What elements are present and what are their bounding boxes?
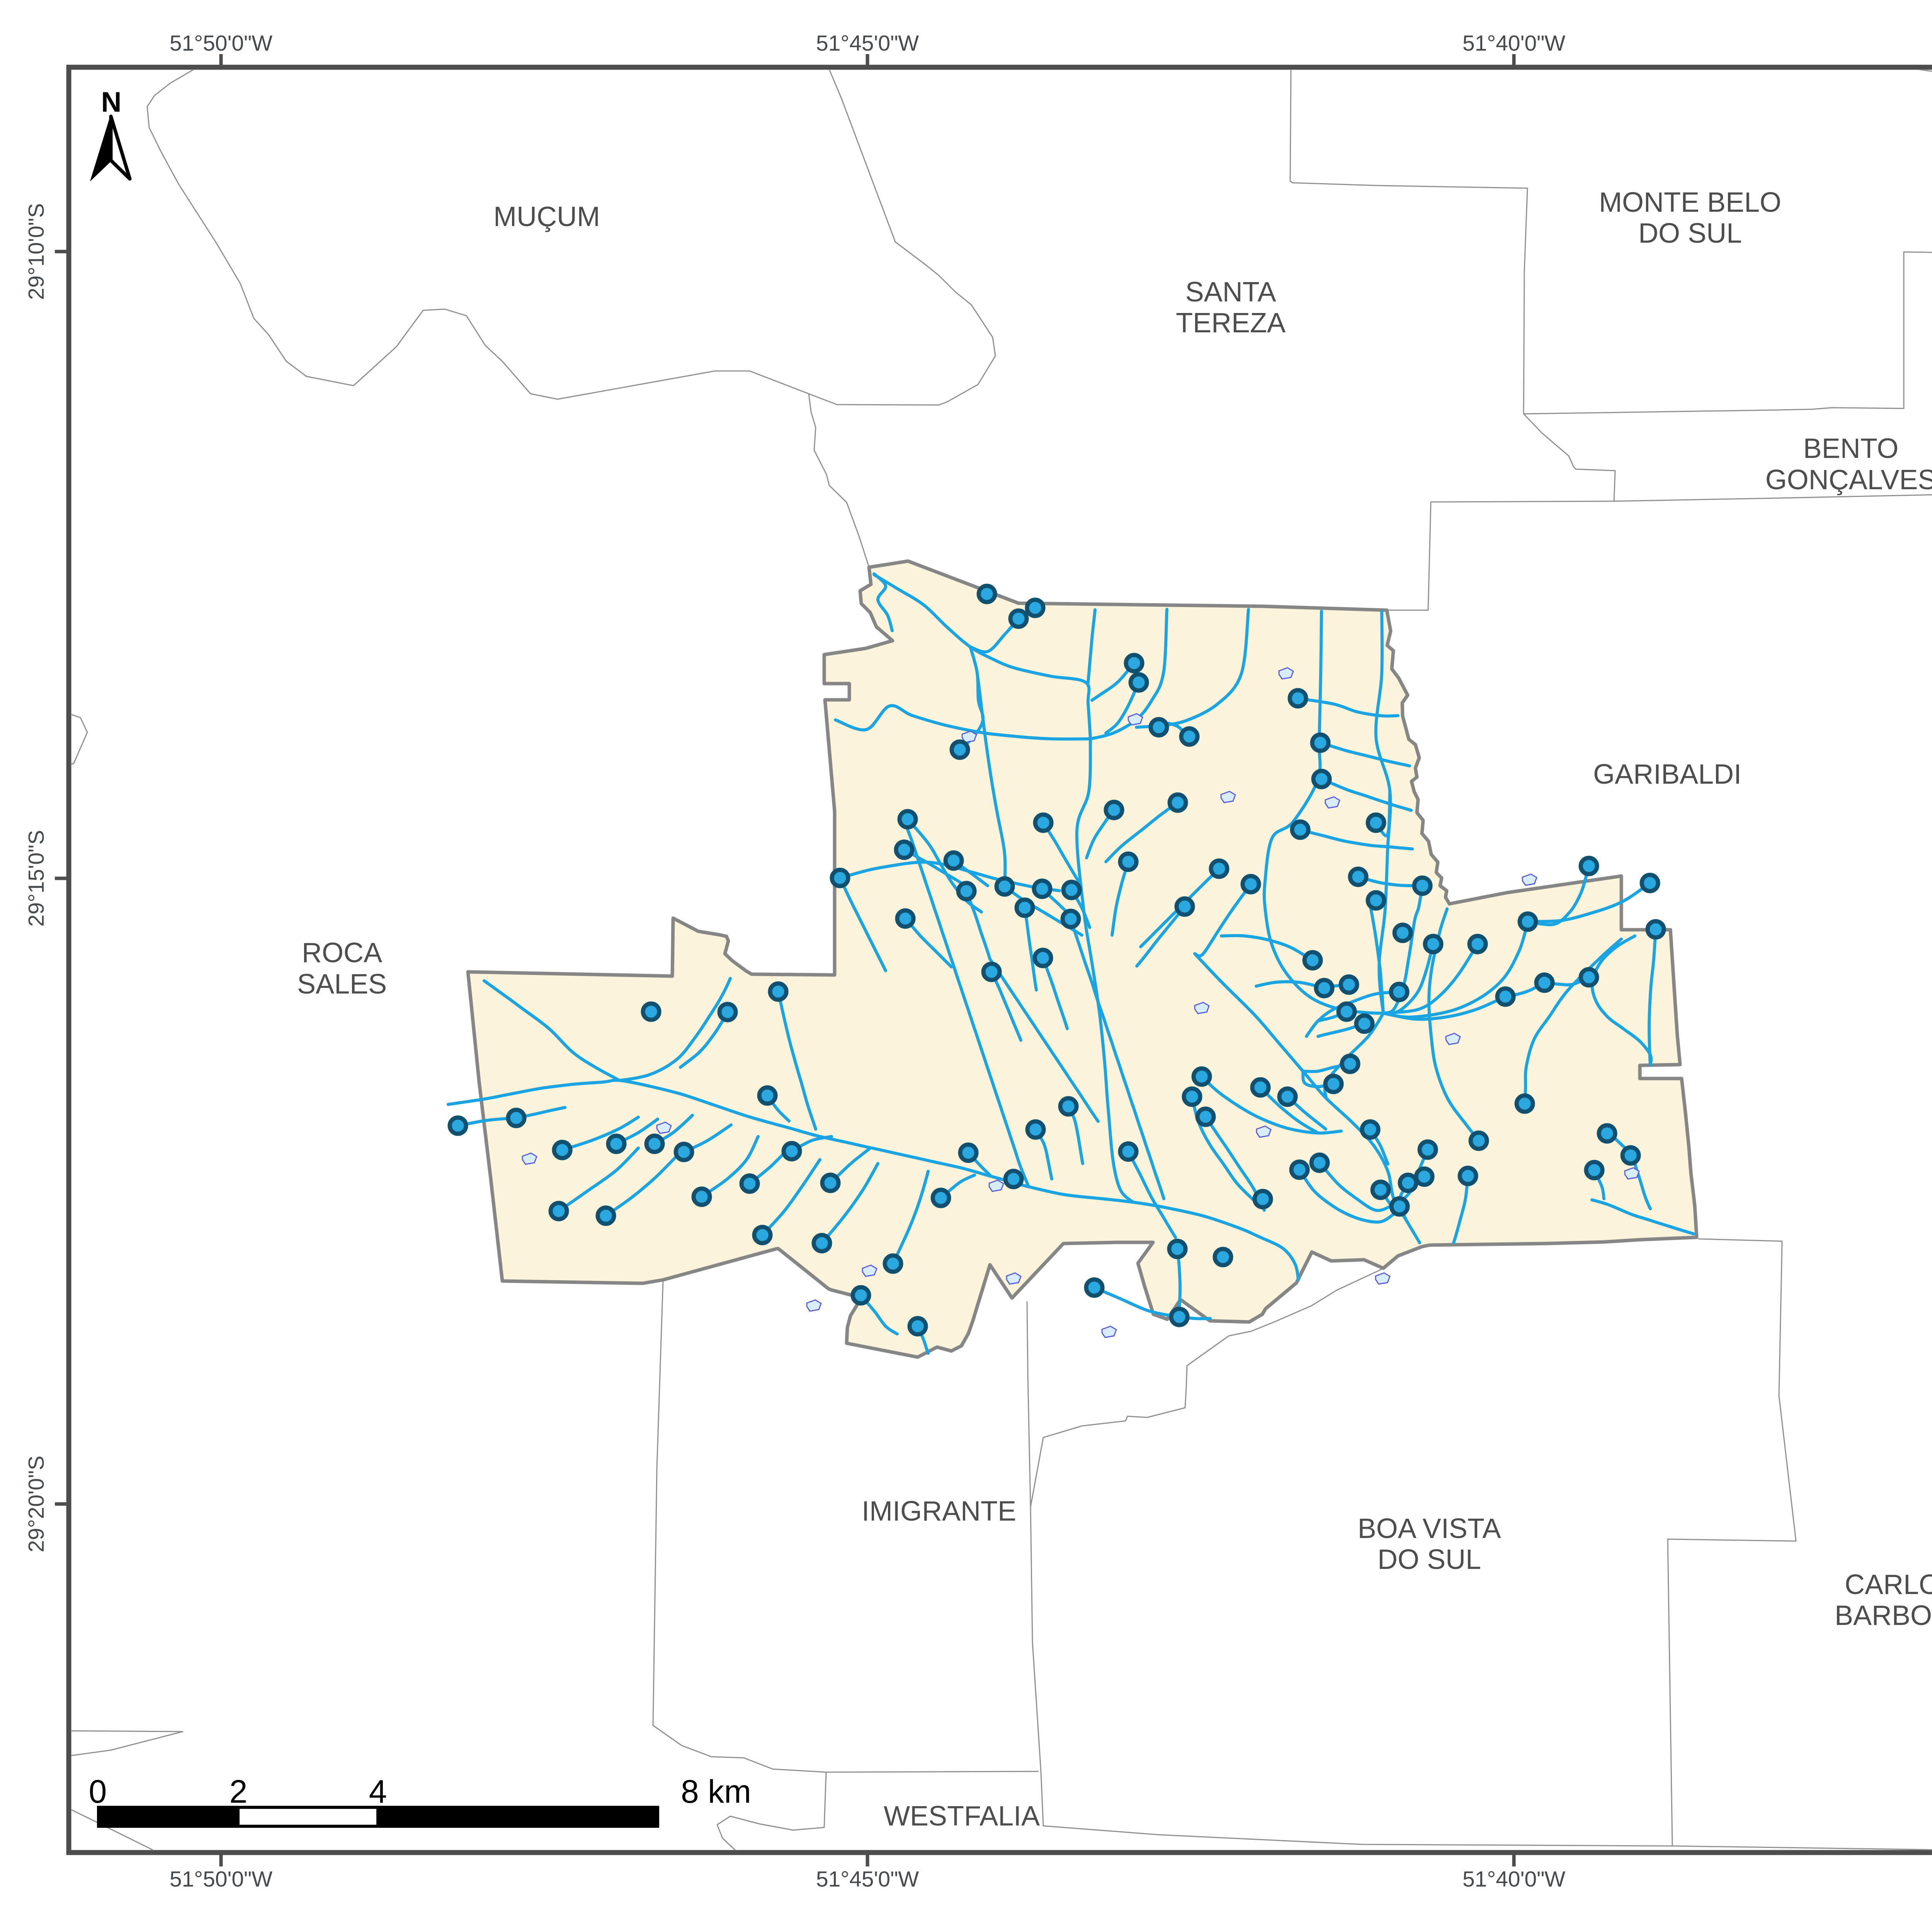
svg-text:BARBOSA: BARBOSA xyxy=(1835,1600,1932,1631)
svg-text:29°15'0"S: 29°15'0"S xyxy=(24,830,49,927)
svg-text:N: N xyxy=(101,87,122,118)
svg-text:MONTE BELO: MONTE BELO xyxy=(1599,187,1781,218)
svg-text:MUÇUM: MUÇUM xyxy=(493,201,600,232)
svg-text:2: 2 xyxy=(230,1773,248,1810)
svg-text:DO SUL: DO SUL xyxy=(1638,218,1742,249)
svg-text:BENTO: BENTO xyxy=(1803,433,1899,464)
svg-text:TEREZA: TEREZA xyxy=(1176,308,1286,339)
svg-text:51°40'0"W: 51°40'0"W xyxy=(1463,31,1565,56)
svg-text:CARLOS: CARLOS xyxy=(1845,1569,1932,1600)
svg-text:29°20'0"S: 29°20'0"S xyxy=(24,1456,49,1552)
svg-text:0: 0 xyxy=(89,1773,107,1810)
svg-text:DO SUL: DO SUL xyxy=(1378,1544,1481,1575)
svg-text:8 km: 8 km xyxy=(681,1773,751,1810)
svg-text:29°10'0"S: 29°10'0"S xyxy=(24,203,49,300)
svg-text:BOA VISTA: BOA VISTA xyxy=(1358,1513,1501,1544)
svg-text:51°50'0"W: 51°50'0"W xyxy=(170,31,272,56)
svg-text:ROCA: ROCA xyxy=(302,937,382,968)
svg-text:IMIGRANTE: IMIGRANTE xyxy=(862,1496,1016,1527)
svg-text:SALES: SALES xyxy=(297,969,387,1000)
svg-text:51°50'0"W: 51°50'0"W xyxy=(170,1867,272,1892)
svg-text:4: 4 xyxy=(369,1773,387,1810)
svg-text:51°45'0"W: 51°45'0"W xyxy=(816,31,919,56)
svg-text:51°40'0"W: 51°40'0"W xyxy=(1463,1867,1565,1892)
svg-text:51°45'0"W: 51°45'0"W xyxy=(816,1867,919,1892)
svg-text:SANTA: SANTA xyxy=(1185,277,1276,308)
svg-text:GONÇALVES: GONÇALVES xyxy=(1765,464,1932,495)
svg-text:GARIBALDI: GARIBALDI xyxy=(1593,759,1742,790)
svg-text:WESTFALIA: WESTFALIA xyxy=(884,1801,1040,1832)
